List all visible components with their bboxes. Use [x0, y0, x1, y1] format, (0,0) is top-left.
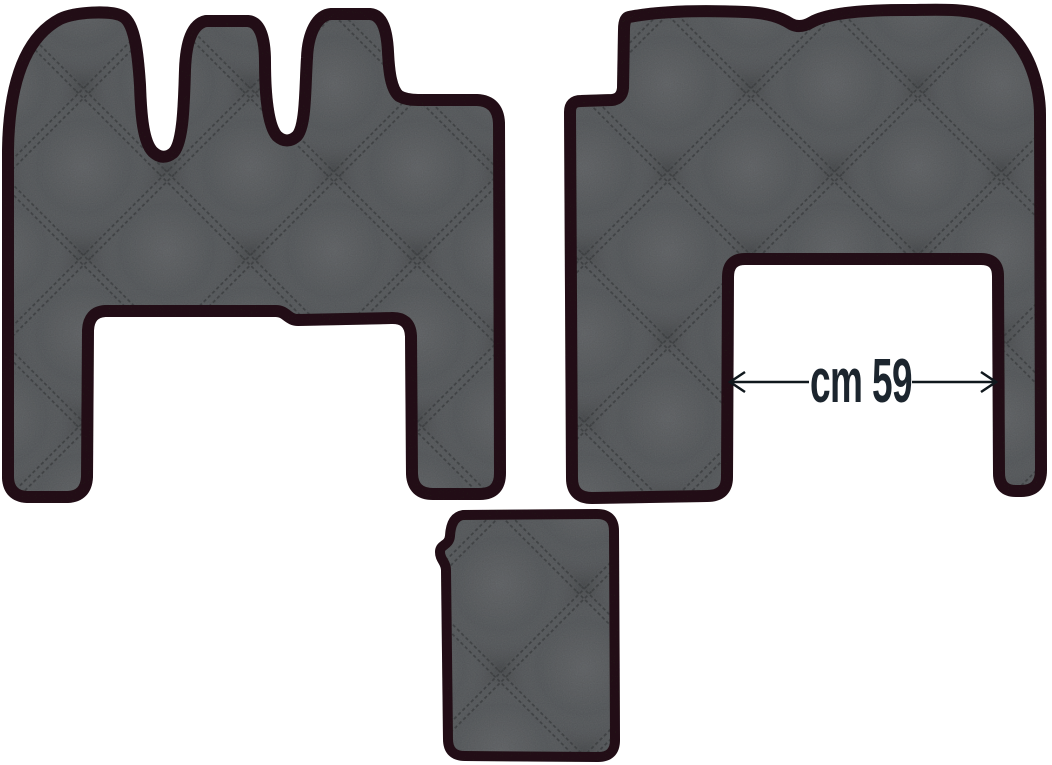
mats-figure: cm 59	[0, 0, 1052, 765]
tunnel-mat	[440, 514, 615, 757]
driver-mat	[8, 12, 500, 497]
product-image: cm 59	[0, 0, 1052, 765]
dimension-label: cm 59	[810, 347, 912, 416]
passenger-mat	[570, 10, 1041, 498]
dimension-annotation: cm 59	[730, 347, 996, 416]
tunnel-mat-quilt-stitching	[440, 514, 615, 757]
